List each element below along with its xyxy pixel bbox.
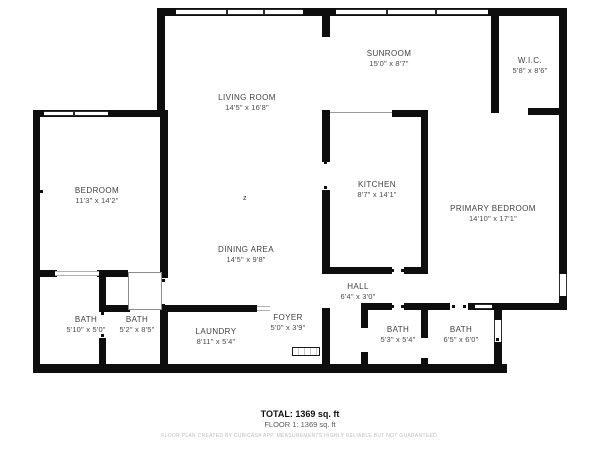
door-jamb-tick xyxy=(463,305,466,308)
wall-kitchen-right xyxy=(421,110,428,274)
shower-outline xyxy=(128,272,162,310)
room-label-sunroom: SUNROOM 15'0" x 8'7" xyxy=(367,49,412,69)
room-name: BATH xyxy=(381,325,416,335)
room-label-bedroom: BEDROOM 11'3" x 14'2" xyxy=(75,186,119,206)
room-dims: 11'3" x 14'2" xyxy=(75,196,119,206)
room-dims: 15'0" x 8'7" xyxy=(367,59,412,69)
window-mullion xyxy=(263,10,265,14)
room-label-bath-1: BATH 5'10" x 5'0" xyxy=(66,315,105,335)
window-bedroom xyxy=(44,111,108,116)
total-area-text: TOTAL: 1369 sq. ft xyxy=(0,410,600,419)
disclaimer-text: FLOOR PLAN CREATED BY CUBICASA APP. MEAS… xyxy=(0,433,600,439)
wall-laundry-left xyxy=(160,308,168,372)
wall-bath3-left-upper xyxy=(361,303,368,328)
room-name: BATH xyxy=(66,315,105,325)
floor-area-text: FLOOR 1: 1369 sq. ft xyxy=(0,420,600,429)
entry-door-leaf xyxy=(292,347,320,356)
door-jamb-tick xyxy=(391,305,394,308)
room-name: HALL xyxy=(341,282,376,292)
opening-bedroom-closet xyxy=(55,271,99,276)
room-label-kitchen: KITCHEN 8'7" x 14'1" xyxy=(357,180,396,200)
window-mullion xyxy=(73,112,75,115)
door-jamb-tick xyxy=(401,305,404,308)
floor-plan-canvas: LIVING ROOM 14'5" x 16'8" SUNROOM 15'0" … xyxy=(0,0,600,450)
room-label-wic: W.I.C. 5'8" x 8'6" xyxy=(513,56,548,76)
room-name: BATH xyxy=(444,325,479,335)
wall-living-left xyxy=(157,8,165,117)
door-jamb-tick xyxy=(530,110,533,113)
room-name: BEDROOM xyxy=(75,186,119,196)
wall-bath3-bath4-divider-lower xyxy=(421,358,428,368)
wall-kitchen-left-upper xyxy=(322,110,330,162)
opening-laundry-foyer xyxy=(257,306,270,311)
window-primary-right xyxy=(559,274,567,296)
room-dims: 5'10" x 5'0" xyxy=(66,325,105,335)
door-jamb-tick xyxy=(496,338,499,341)
area-summary: TOTAL: 1369 sq. ft FLOOR 1: 1369 sq. ft xyxy=(0,410,600,429)
window-bath4-top xyxy=(475,304,492,309)
wall-bath-divider-upper xyxy=(99,270,106,312)
room-dims: 14'5" x 16'8" xyxy=(218,103,276,113)
window-mullion xyxy=(226,10,228,14)
room-label-laundry: LAUNDRY 8'11" x 5'4" xyxy=(196,327,237,347)
wall-bath-divider-lower xyxy=(99,338,106,368)
room-dims: 5'3" x 5'4" xyxy=(381,335,416,345)
opening-kitchen-sunroom xyxy=(330,112,392,113)
window-mullion xyxy=(386,10,388,14)
room-name: SUNROOM xyxy=(367,49,412,59)
wall-shower-stub xyxy=(106,305,130,312)
window-living-room xyxy=(176,9,303,15)
room-dims: 14'10" x 17'1" xyxy=(450,214,536,224)
wall-foyer-right xyxy=(322,308,330,368)
wall-laundry-top xyxy=(160,305,257,312)
room-label-living-room: LIVING ROOM 14'5" x 16'8" xyxy=(218,93,276,113)
room-dims: 6'5" x 6'0" xyxy=(444,335,479,345)
room-dims: 5'8" x 8'6" xyxy=(513,66,548,76)
room-dims: 8'7" x 14'1" xyxy=(357,190,396,200)
room-name: DINING AREA xyxy=(218,245,274,255)
door-jamb-tick xyxy=(162,279,165,282)
wall-bedroom-bottom-a xyxy=(33,270,57,277)
door-jamb-tick xyxy=(324,161,327,164)
door-jamb-tick xyxy=(391,269,394,272)
room-label-foyer: FOYER 5'0" x 3'9" xyxy=(271,313,306,333)
window-mullion xyxy=(435,10,437,14)
room-dims: 6'4" x 3'0" xyxy=(341,292,376,302)
room-label-bath-2: BATH 5'2" x 8'5" xyxy=(120,315,155,335)
wall-bath3-left-lower xyxy=(361,352,368,368)
room-label-bath-3: BATH 5'3" x 5'4" xyxy=(381,325,416,345)
window-sunroom xyxy=(336,9,488,15)
room-name: LIVING ROOM xyxy=(218,93,276,103)
wall-primary-bottom xyxy=(491,303,567,310)
wall-hall-bottom-b xyxy=(404,303,428,310)
room-dims: 8'11" x 5'4" xyxy=(196,337,237,347)
wall-wic-bottom xyxy=(528,108,567,115)
room-label-dining-area: DINING AREA 14'5" x 9'8" xyxy=(218,245,274,265)
room-label-primary-bedroom: PRIMARY BEDROOM 14'10" x 17'1" xyxy=(450,204,536,224)
door-jamb-tick xyxy=(452,305,455,308)
room-name: PRIMARY BEDROOM xyxy=(450,204,536,214)
wall-bath3-bath4-divider-upper xyxy=(421,310,428,338)
wall-right xyxy=(559,8,567,310)
wall-bath4-top-a xyxy=(428,303,450,310)
wall-wic-left xyxy=(491,13,499,113)
room-name: LAUNDRY xyxy=(196,327,237,337)
room-dims: 5'2" x 8'5" xyxy=(120,325,155,335)
scale-marker-icon: z xyxy=(243,195,247,202)
room-name: W.I.C. xyxy=(513,56,548,66)
door-jamb-tick xyxy=(40,190,43,193)
wall-bath4-right-lower xyxy=(494,342,502,372)
wall-kitchen-left-lower xyxy=(322,190,330,274)
wall-sunroom-bottom xyxy=(392,110,428,117)
wall-sunroom-left-stub xyxy=(322,8,330,37)
room-label-bath-4: BATH 6'5" x 6'0" xyxy=(444,325,479,345)
room-dims: 14'5" x 9'8" xyxy=(218,255,274,265)
room-label-hall: HALL 6'4" x 3'0" xyxy=(341,282,376,302)
room-name: FOYER xyxy=(271,313,306,323)
wall-left xyxy=(33,110,40,372)
door-jamb-tick xyxy=(162,304,165,307)
door-jamb-tick xyxy=(401,269,404,272)
room-name: KITCHEN xyxy=(357,180,396,190)
room-dims: 5'0" x 3'9" xyxy=(271,323,306,333)
door-jamb-tick xyxy=(324,186,327,189)
room-name: BATH xyxy=(120,315,155,325)
wall-hall-top-a xyxy=(322,267,392,274)
wall-bedroom-living-divider xyxy=(160,110,168,278)
